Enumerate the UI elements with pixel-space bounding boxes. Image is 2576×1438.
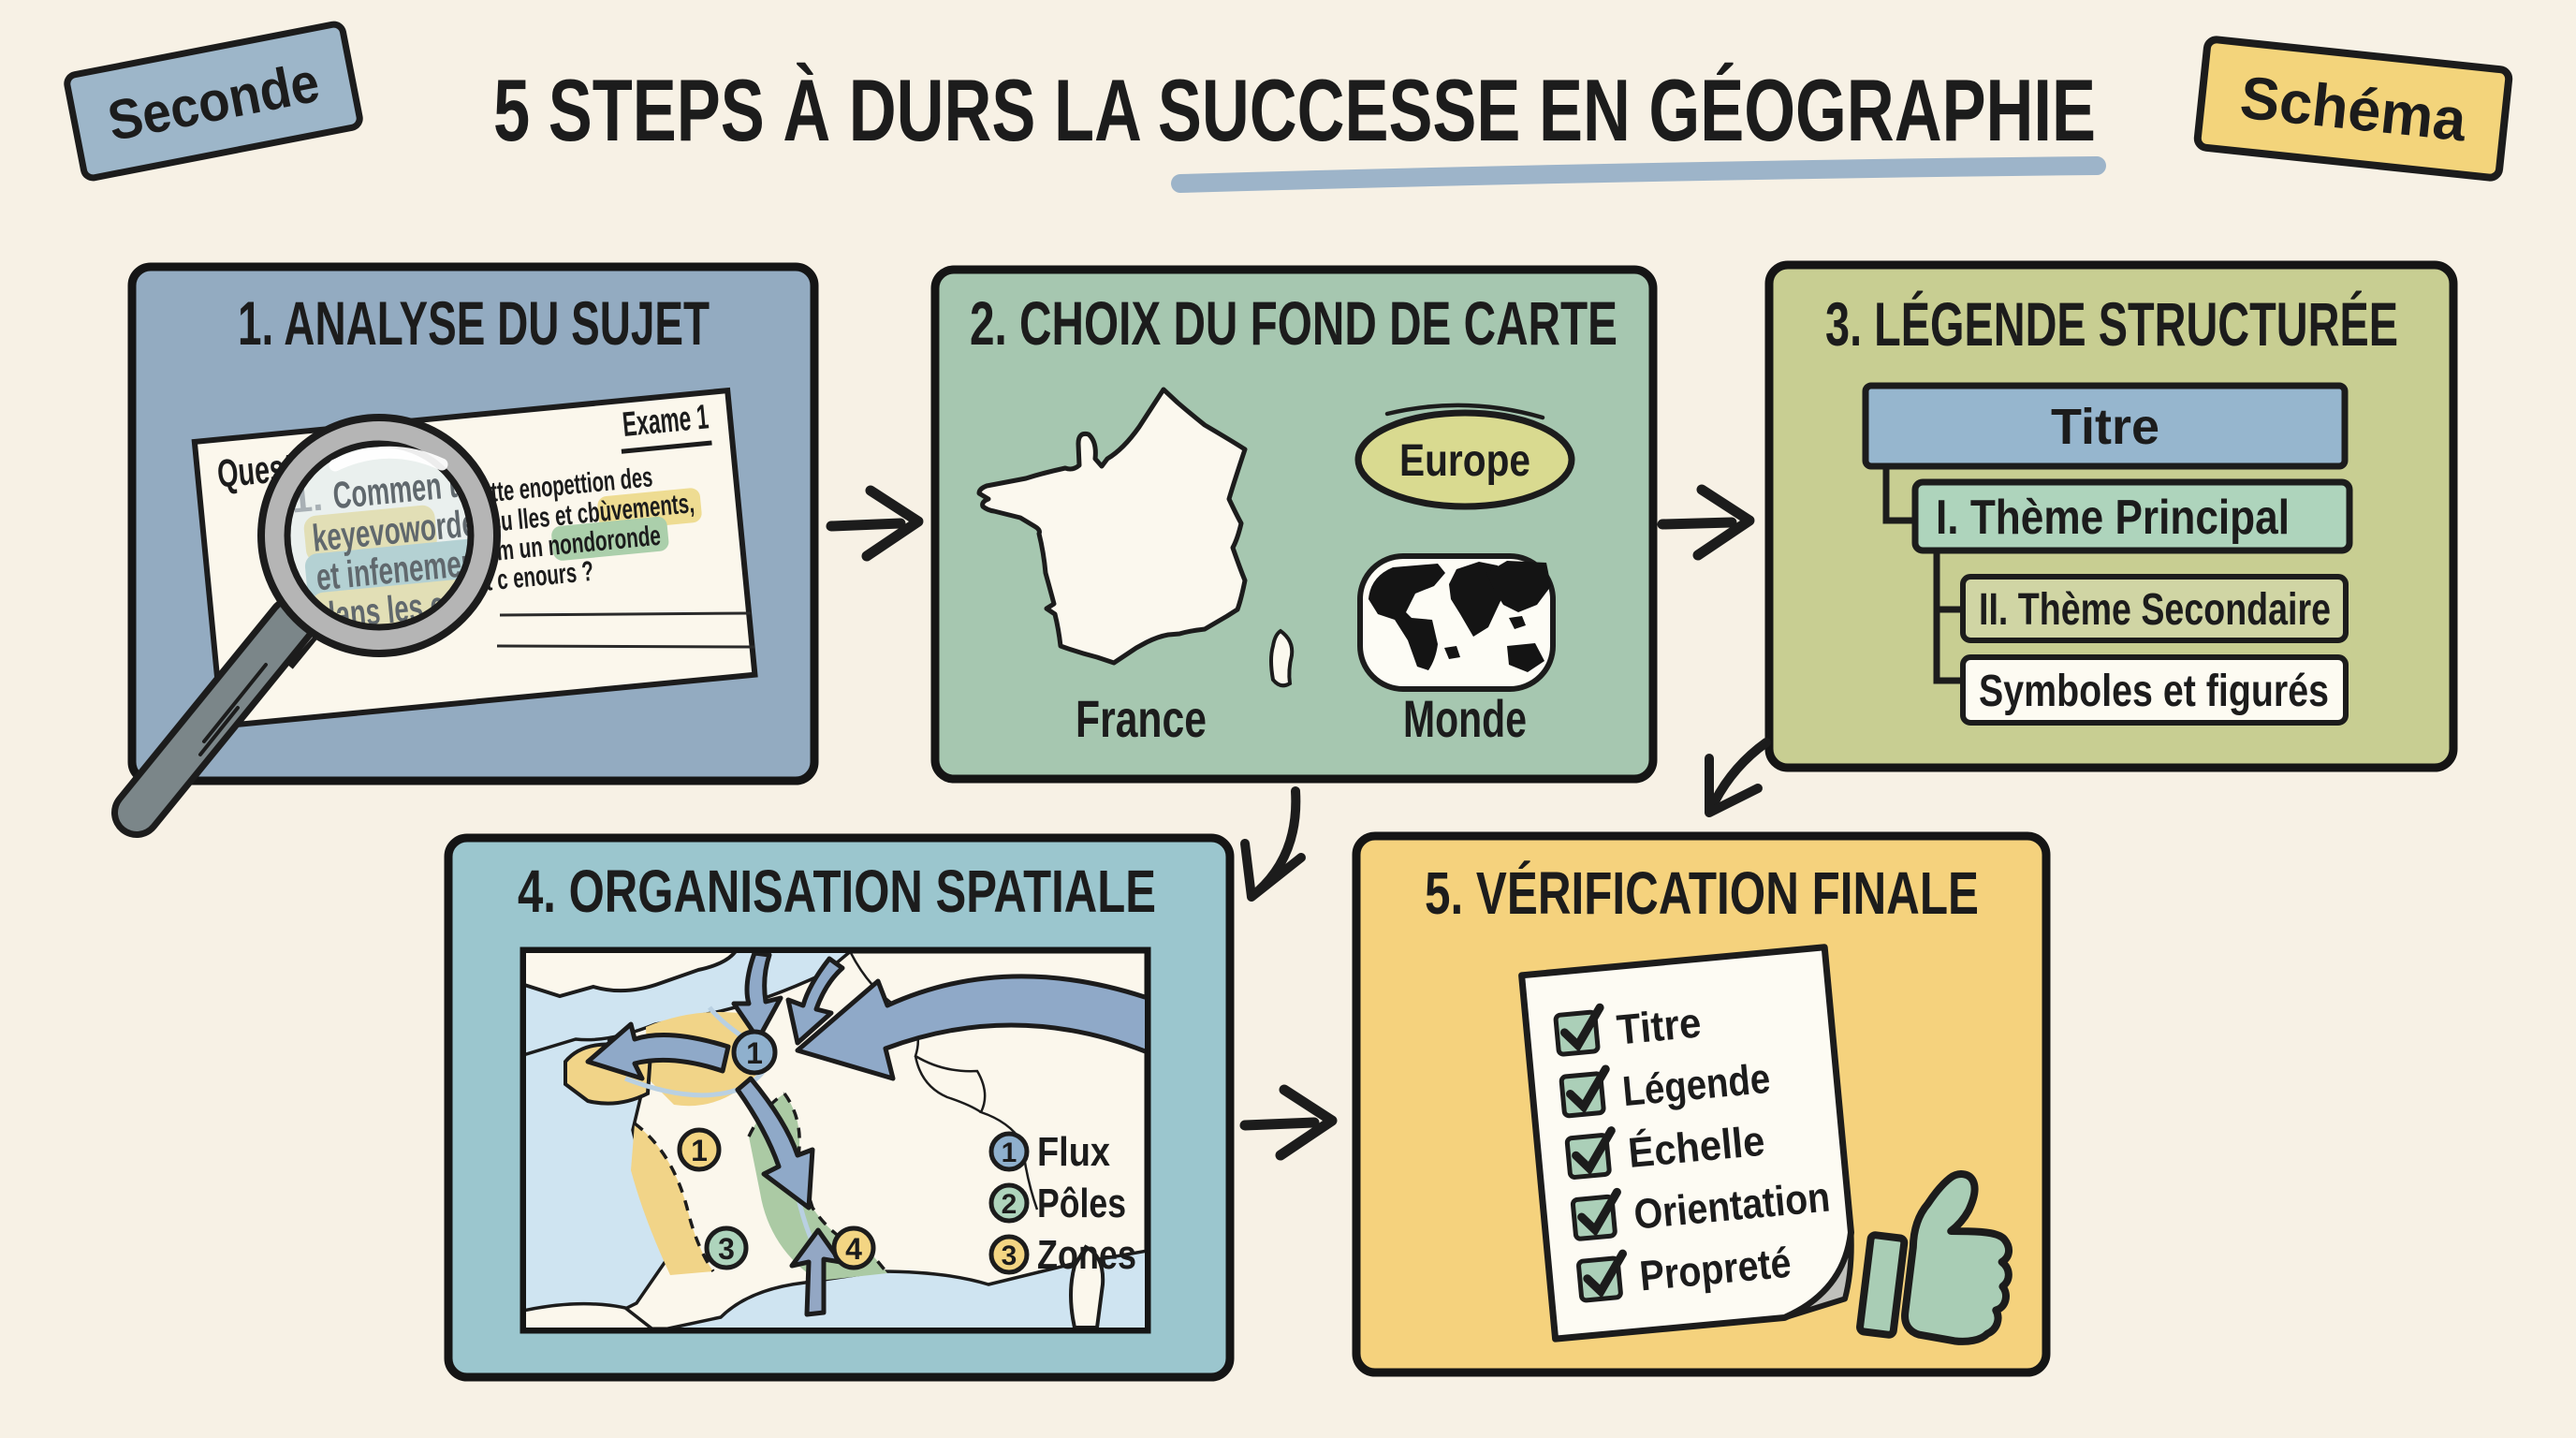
svg-text:Titre: Titre: [2051, 399, 2159, 455]
svg-text:Zones: Zones: [1037, 1232, 1136, 1278]
svg-text:I. Thème Principal: I. Thème Principal: [1936, 491, 2290, 545]
svg-text:4. ORGANISATION SPATIALE: 4. ORGANISATION SPATIALE: [518, 858, 1156, 925]
svg-text:3: 3: [1002, 1240, 1017, 1271]
svg-text:1: 1: [691, 1134, 708, 1167]
svg-text:Exame 1: Exame 1: [621, 397, 710, 444]
svg-text:3: 3: [718, 1232, 735, 1266]
svg-text:Symboles et figurés: Symboles et figurés: [1979, 667, 2329, 716]
svg-text:Europe: Europe: [1399, 436, 1530, 486]
svg-text:5 STEPS À DURS LA SUCCESSE EN: 5 STEPS À DURS LA SUCCESSE EN GÉOGRAPHIE: [493, 61, 2096, 159]
svg-text:France: France: [1076, 689, 1207, 748]
svg-text:2: 2: [1002, 1189, 1017, 1220]
svg-text:3. LÉGENDE STRUCTURÉE: 3. LÉGENDE STRUCTURÉE: [1825, 289, 2398, 359]
svg-text:1. ANALYSE DU SUJET: 1. ANALYSE DU SUJET: [238, 288, 710, 358]
svg-text:Monde: Monde: [1403, 689, 1527, 748]
svg-text:4: 4: [845, 1232, 862, 1266]
svg-text:1: 1: [746, 1036, 763, 1070]
svg-text:5. VÉRIFICATION FINALE: 5. VÉRIFICATION FINALE: [1425, 859, 1979, 927]
svg-text:Pôles: Pôles: [1037, 1181, 1126, 1226]
svg-text:Titre: Titre: [1615, 998, 1703, 1053]
svg-text:1: 1: [1002, 1137, 1017, 1168]
svg-text:2. CHOIX DU FOND DE CARTE: 2. CHOIX DU FOND DE CARTE: [970, 288, 1617, 358]
svg-text:Flux: Flux: [1037, 1129, 1110, 1175]
svg-text:II. Thème Secondaire: II. Thème Secondaire: [1979, 585, 2331, 635]
